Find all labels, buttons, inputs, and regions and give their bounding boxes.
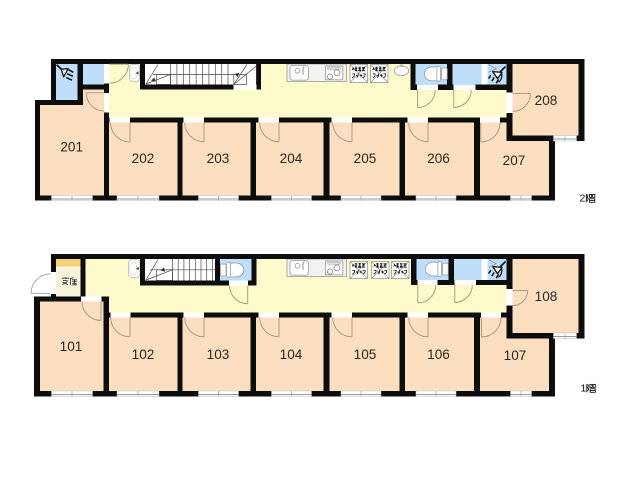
svg-text:2: 2 [580, 193, 586, 205]
svg-text:1: 1 [581, 383, 587, 395]
svg-text:204: 204 [280, 151, 303, 166]
svg-text:106: 106 [427, 347, 450, 362]
svg-text:206: 206 [427, 151, 450, 166]
svg-text:205: 205 [354, 151, 377, 166]
svg-text:202: 202 [132, 151, 155, 166]
svg-text:105: 105 [354, 347, 377, 362]
svg-text:104: 104 [280, 347, 303, 362]
svg-text:203: 203 [207, 151, 230, 166]
svg-text:103: 103 [207, 347, 230, 362]
svg-text:107: 107 [504, 348, 527, 363]
svg-text:207: 207 [503, 153, 526, 168]
svg-text:201: 201 [60, 139, 83, 154]
svg-text:108: 108 [535, 289, 558, 304]
svg-text:208: 208 [535, 93, 558, 108]
svg-text:101: 101 [60, 339, 83, 354]
svg-text:102: 102 [132, 347, 155, 362]
